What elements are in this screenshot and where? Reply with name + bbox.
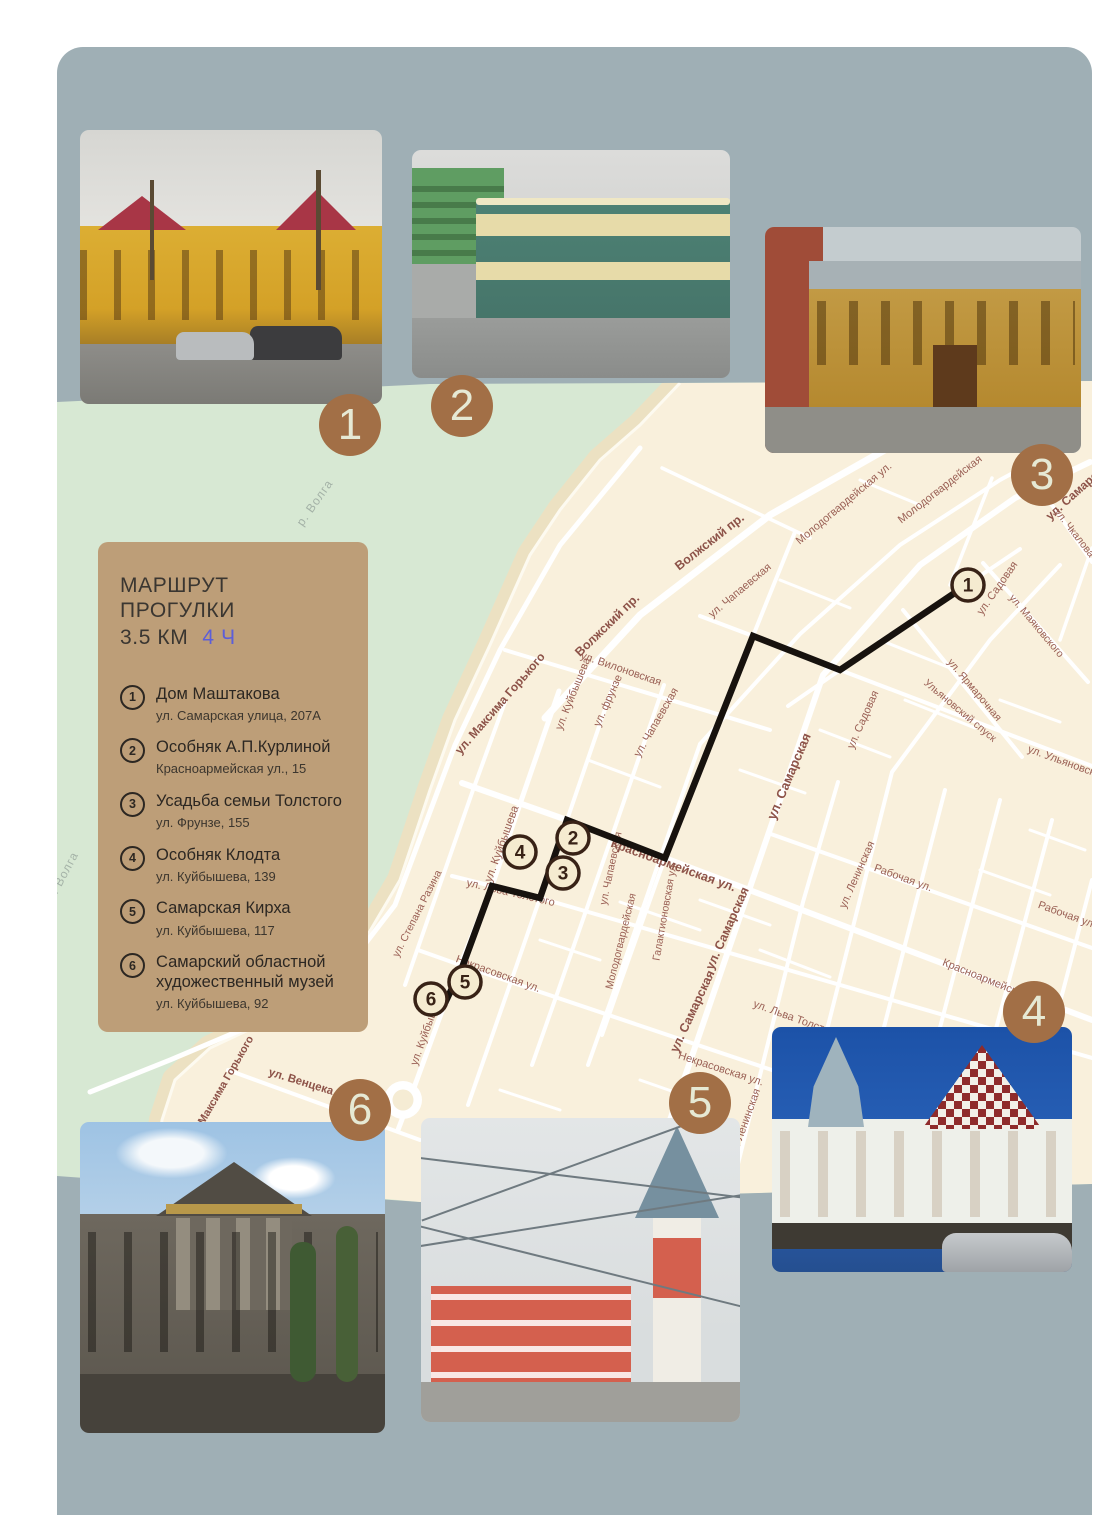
stop-number-icon: 4 — [120, 846, 145, 871]
stop-number-icon: 2 — [120, 738, 145, 763]
map-stop-marker: 3 — [547, 857, 579, 889]
list-item: 2 Особняк А.П.Курлиной Красноармейская у… — [120, 737, 348, 777]
list-item: 3 Усадьба семьи Толстого ул. Фрунзе, 155 — [120, 791, 348, 831]
photo-number-badge: 2 — [431, 375, 493, 437]
stop-number-icon: 5 — [120, 899, 145, 924]
map-stop-marker: 4 — [504, 836, 536, 868]
photo-number-badge: 5 — [669, 1072, 731, 1134]
svg-text:1: 1 — [963, 576, 974, 597]
svg-text:2: 2 — [568, 829, 579, 850]
stop-name: Особняк Клодта — [156, 846, 280, 864]
poster-canvas: ул. Максима Горькогоул. Максима Горького… — [0, 0, 1096, 1515]
stop-name: Дом Маштакова — [156, 685, 280, 703]
list-item: 6 Самарский областной художественный муз… — [120, 952, 348, 1012]
photo-hudozhestvenny-muzey — [80, 1122, 385, 1433]
stop-number-icon: 3 — [120, 792, 145, 817]
stop-name: Самарская Кирха — [156, 899, 291, 917]
photo-number-badge: 3 — [1011, 444, 1073, 506]
svg-text:4: 4 — [515, 843, 526, 864]
photo-osobnyak-klodta — [772, 1027, 1072, 1272]
stop-name: Особняк А.П.Курлиной — [156, 738, 330, 756]
photo-number-badge: 6 — [329, 1079, 391, 1141]
legend-duration: 4 Ч — [202, 626, 235, 649]
map-stop-marker: 2 — [557, 822, 589, 854]
stop-address: Красноармейская ул., 15 — [156, 761, 330, 777]
photo-usadba-tolstogo — [765, 227, 1081, 453]
map-stop-marker: 1 — [952, 569, 984, 601]
photo-number-badge: 1 — [319, 394, 381, 456]
map-stop-marker: 6 — [415, 983, 447, 1015]
map-stop-marker: 5 — [449, 966, 481, 998]
svg-text:5: 5 — [460, 973, 471, 994]
stop-address: ул. Куйбышева, 139 — [156, 869, 280, 885]
photo-number-badge: 4 — [1003, 981, 1065, 1043]
photo-osobnyak-kurlinoy — [412, 150, 730, 378]
stop-number-icon: 6 — [120, 953, 145, 978]
stop-name: Самарский областной художественный музей — [156, 953, 334, 991]
legend-distance: 3.5 КМ — [120, 626, 188, 649]
stop-address: ул. Куйбышева, 117 — [156, 923, 291, 939]
list-item: 4 Особняк Клодта ул. Куйбышева, 139 — [120, 845, 348, 885]
list-item: 5 Самарская Кирха ул. Куйбышева, 117 — [120, 898, 348, 938]
list-item: 1 Дом Маштакова ул. Самарская улица, 207… — [120, 684, 348, 724]
photo-samarskaya-kirkha — [421, 1118, 740, 1422]
svg-text:6: 6 — [426, 990, 437, 1011]
svg-text:3: 3 — [558, 864, 569, 885]
stop-address: ул. Фрунзе, 155 — [156, 815, 342, 831]
stop-number-icon: 1 — [120, 685, 145, 710]
plaza-roundabout-center — [393, 1090, 414, 1111]
route-legend-panel: МАРШРУТ ПРОГУЛКИ 3.5 КМ4 Ч 1 Дом Маштако… — [98, 542, 368, 1032]
stop-name: Усадьба семьи Толстого — [156, 792, 342, 810]
stop-address: ул. Самарская улица, 207А — [156, 708, 321, 724]
legend-stop-list: 1 Дом Маштакова ул. Самарская улица, 207… — [120, 684, 348, 1012]
stop-address: ул. Куйбышева, 92 — [156, 996, 348, 1012]
legend-title: МАРШРУТ ПРОГУЛКИ — [120, 574, 348, 624]
legend-distance-duration: 3.5 КМ4 Ч — [120, 626, 348, 650]
photo-dom-mashtakova — [80, 130, 382, 404]
